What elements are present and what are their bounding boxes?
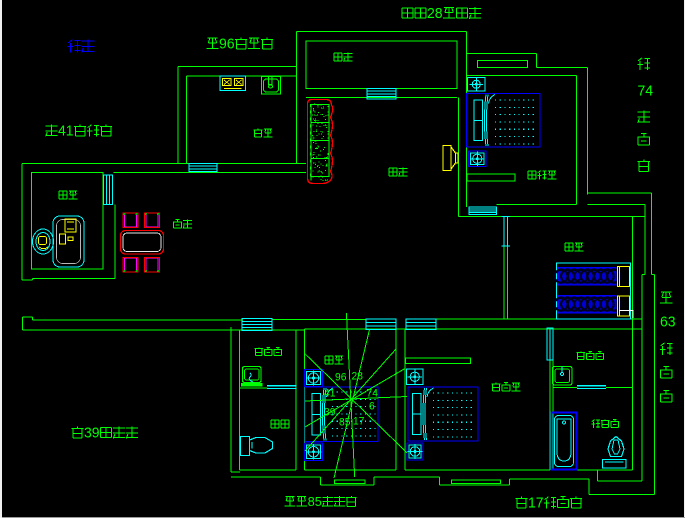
svg-text:63: 63 [660,314,676,330]
svg-text:96: 96 [219,36,235,52]
svg-text:39: 39 [84,425,100,441]
svg-text:17: 17 [528,495,544,511]
svg-text:6: 6 [369,400,375,412]
svg-text:74: 74 [638,83,654,99]
svg-text:17: 17 [353,415,364,427]
svg-text:85: 85 [339,416,350,428]
svg-text:74: 74 [367,387,378,399]
svg-text:28: 28 [352,370,363,382]
svg-text:28: 28 [427,6,443,22]
svg-text:39: 39 [324,406,335,418]
svg-text:85: 85 [308,494,322,509]
svg-text:96: 96 [335,371,346,383]
svg-text:41: 41 [324,387,335,399]
svg-text:41: 41 [58,123,74,139]
